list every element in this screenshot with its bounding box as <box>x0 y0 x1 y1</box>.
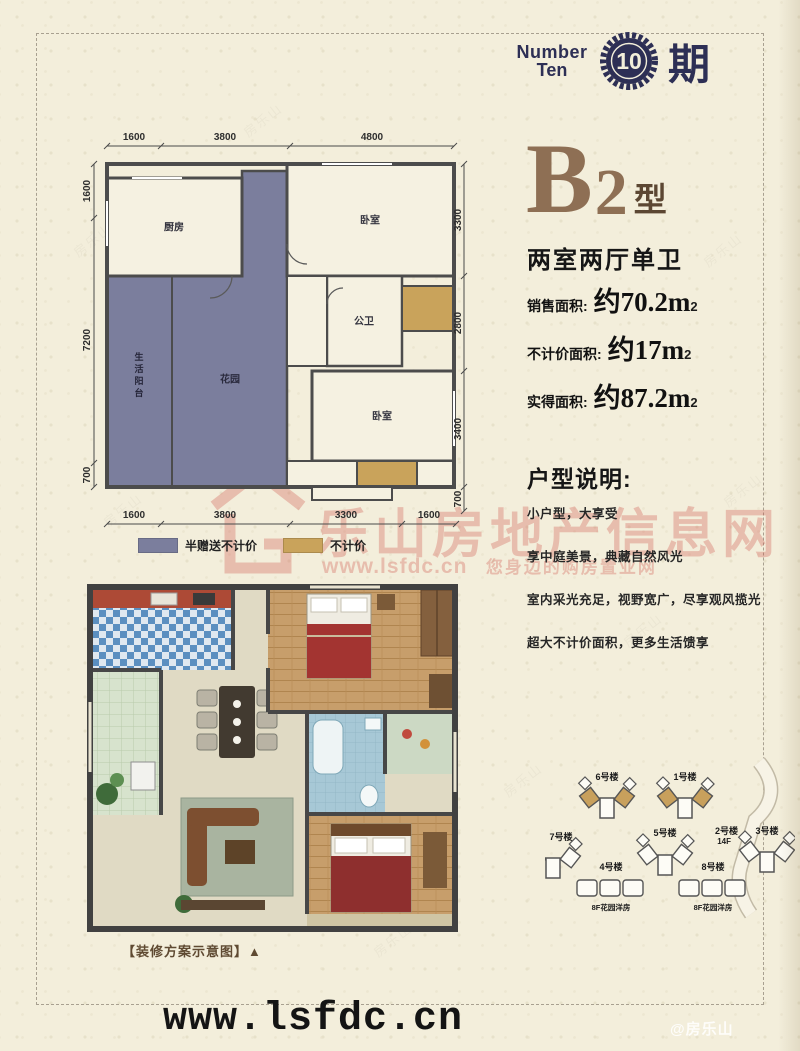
svg-text:1600: 1600 <box>123 132 146 143</box>
area-list: 销售面积: 约70.2m2 不计价面积: 约17m2 实得面积: 约87.2m2 <box>527 280 698 424</box>
svg-text:3号楼: 3号楼 <box>755 825 778 836</box>
area-value: 约17m <box>608 328 685 367</box>
dimensions-top: 1600 3800 4800 <box>104 132 457 149</box>
description-line: 小户型，大享受 <box>527 503 761 522</box>
building-6 <box>579 777 636 818</box>
brand-word-ten: Ten <box>512 61 592 79</box>
edge-shadow <box>778 0 800 1051</box>
gold-balcony-right <box>402 286 454 331</box>
svg-text:1号楼: 1号楼 <box>673 771 696 782</box>
brand-suffix: 期 <box>668 31 710 92</box>
hall <box>287 276 327 366</box>
svg-text:8号楼: 8号楼 <box>701 861 724 872</box>
render-bedroom-top <box>268 590 453 712</box>
dimensions-left: 1600 7200 700 <box>82 161 97 490</box>
gold-balcony-bottom <box>357 461 417 487</box>
unit-letter: B <box>526 138 593 220</box>
svg-text:5号楼: 5号楼 <box>653 827 676 838</box>
area-row-actual: 实得面积: 约87.2m2 <box>527 376 698 415</box>
bottom-protrusion <box>312 487 392 500</box>
render-living <box>175 798 293 913</box>
description-line: 超大不计价面积，更多生活馈享 <box>527 632 761 651</box>
unit-number: 2 <box>595 167 628 220</box>
description-title: 户型说明: <box>527 460 632 494</box>
unit-title: B 2 型 <box>526 138 667 220</box>
legend-swatch-purple <box>138 538 178 553</box>
corner-watermark: @房乐山 <box>670 1018 734 1039</box>
render-balcony-right <box>387 712 453 774</box>
area-row-sale: 销售面积: 约70.2m2 <box>527 280 698 319</box>
svg-text:3300: 3300 <box>335 510 358 521</box>
room-label-service-balcony: 生活阳台 <box>133 352 146 400</box>
room-label-bath: 公卫 <box>354 313 374 328</box>
area-value: 约87.2m <box>594 376 691 415</box>
decorated-floorplan-svg <box>85 582 460 934</box>
svg-text:4800: 4800 <box>361 132 384 143</box>
room-label-bedroom-top: 卧室 <box>360 212 380 227</box>
room-label-bedroom-low: 卧室 <box>372 408 392 423</box>
render-bathroom <box>307 712 385 814</box>
room-label-garden: 花园 <box>220 371 240 386</box>
render-kitchen <box>93 590 233 670</box>
svg-text:3400: 3400 <box>453 417 464 440</box>
legend-swatch-gold <box>283 538 323 553</box>
siteplan-svg: 6号楼 1号楼 2号楼 14F 7号楼 4号楼 5号楼 8号楼 3号楼 8F花园… <box>545 748 795 948</box>
svg-text:2号楼: 2号楼 <box>715 825 738 836</box>
floorplan-schematic: 1600 3800 4800 1600 3800 3300 1600 1600 … <box>82 126 472 566</box>
svg-text:700: 700 <box>453 490 464 507</box>
area-label: 不计价面积: <box>527 344 602 364</box>
floorplan-legend: 半赠送不计价 不计价 <box>138 537 392 554</box>
svg-text:7200: 7200 <box>82 328 93 351</box>
building-4-strip <box>577 880 643 896</box>
area-value: 约70.2m <box>594 280 691 319</box>
area-label: 实得面积: <box>527 392 588 412</box>
decorated-floorplan <box>85 582 460 934</box>
area-row-free: 不计价面积: 约17m2 <box>527 328 698 367</box>
building-5 <box>637 834 694 875</box>
brand-logo: Number Ten 10 期 <box>512 30 710 92</box>
svg-text:3800: 3800 <box>214 510 237 521</box>
svg-text:7号楼: 7号楼 <box>549 831 572 842</box>
area-sup: 2 <box>690 299 697 314</box>
room-label-kitchen: 厨房 <box>164 219 184 234</box>
area-label: 销售面积: <box>527 296 588 316</box>
siteplan: 6号楼 1号楼 2号楼 14F 7号楼 4号楼 5号楼 8号楼 3号楼 8F花园… <box>545 748 795 953</box>
svg-text:6号楼: 6号楼 <box>595 771 618 782</box>
svg-text:3800: 3800 <box>214 132 237 143</box>
unit-suffix: 型 <box>634 183 667 216</box>
building-1 <box>657 777 714 818</box>
legend-label-purple: 半赠送不计价 <box>185 537 257 554</box>
svg-text:3300: 3300 <box>453 208 464 231</box>
brand-words: Number Ten <box>512 43 592 80</box>
legend-label-gold: 不计价 <box>330 537 366 554</box>
area-sup: 2 <box>684 347 691 362</box>
render-service-balcony <box>93 670 161 815</box>
balcony-white <box>287 461 357 487</box>
brand-word-number: Number <box>512 43 592 61</box>
building-7 <box>545 837 582 878</box>
svg-text:1600: 1600 <box>418 510 441 521</box>
site-url: www.lsfdc.cn <box>163 997 463 1042</box>
flyer-page: 房乐山 房乐山 房乐山 房乐山 房乐山 房乐山 房乐山 房乐山 房乐山 房乐山 … <box>0 0 800 1051</box>
svg-text:14F: 14F <box>717 837 731 846</box>
svg-text:8F花园洋房: 8F花园洋房 <box>592 902 631 912</box>
description-lines: 小户型，大享受 享中庭美景，典藏自然风光 室内采光充足，视野宽广，尽享观风揽光 … <box>527 503 761 675</box>
render-balcony-bottom <box>307 914 453 926</box>
render-caption: 【装修方案示意图】▲ <box>122 941 262 960</box>
building-8-strip <box>679 880 745 896</box>
unit-layout: 两室两厅单卫 <box>527 240 683 275</box>
dimensions-bottom: 1600 3800 3300 1600 <box>104 510 459 527</box>
svg-text:1600: 1600 <box>123 510 146 521</box>
floorplan-svg: 1600 3800 4800 1600 3800 3300 1600 1600 … <box>82 126 472 566</box>
description-line: 享中庭美景，典藏自然风光 <box>527 546 761 565</box>
svg-text:1600: 1600 <box>82 179 93 202</box>
description-line: 室内采光充足，视野宽广，尽享观风揽光 <box>527 589 761 608</box>
badge-10-icon: 10 <box>598 30 660 92</box>
badge-number: 10 <box>616 48 642 74</box>
svg-text:2800: 2800 <box>453 311 464 334</box>
render-bedroom-master <box>307 814 453 914</box>
svg-text:8F花园洋房: 8F花园洋房 <box>694 902 733 912</box>
svg-text:4号楼: 4号楼 <box>599 861 622 872</box>
area-sup: 2 <box>690 395 697 410</box>
render-dining <box>197 686 277 758</box>
svg-text:700: 700 <box>82 466 93 483</box>
